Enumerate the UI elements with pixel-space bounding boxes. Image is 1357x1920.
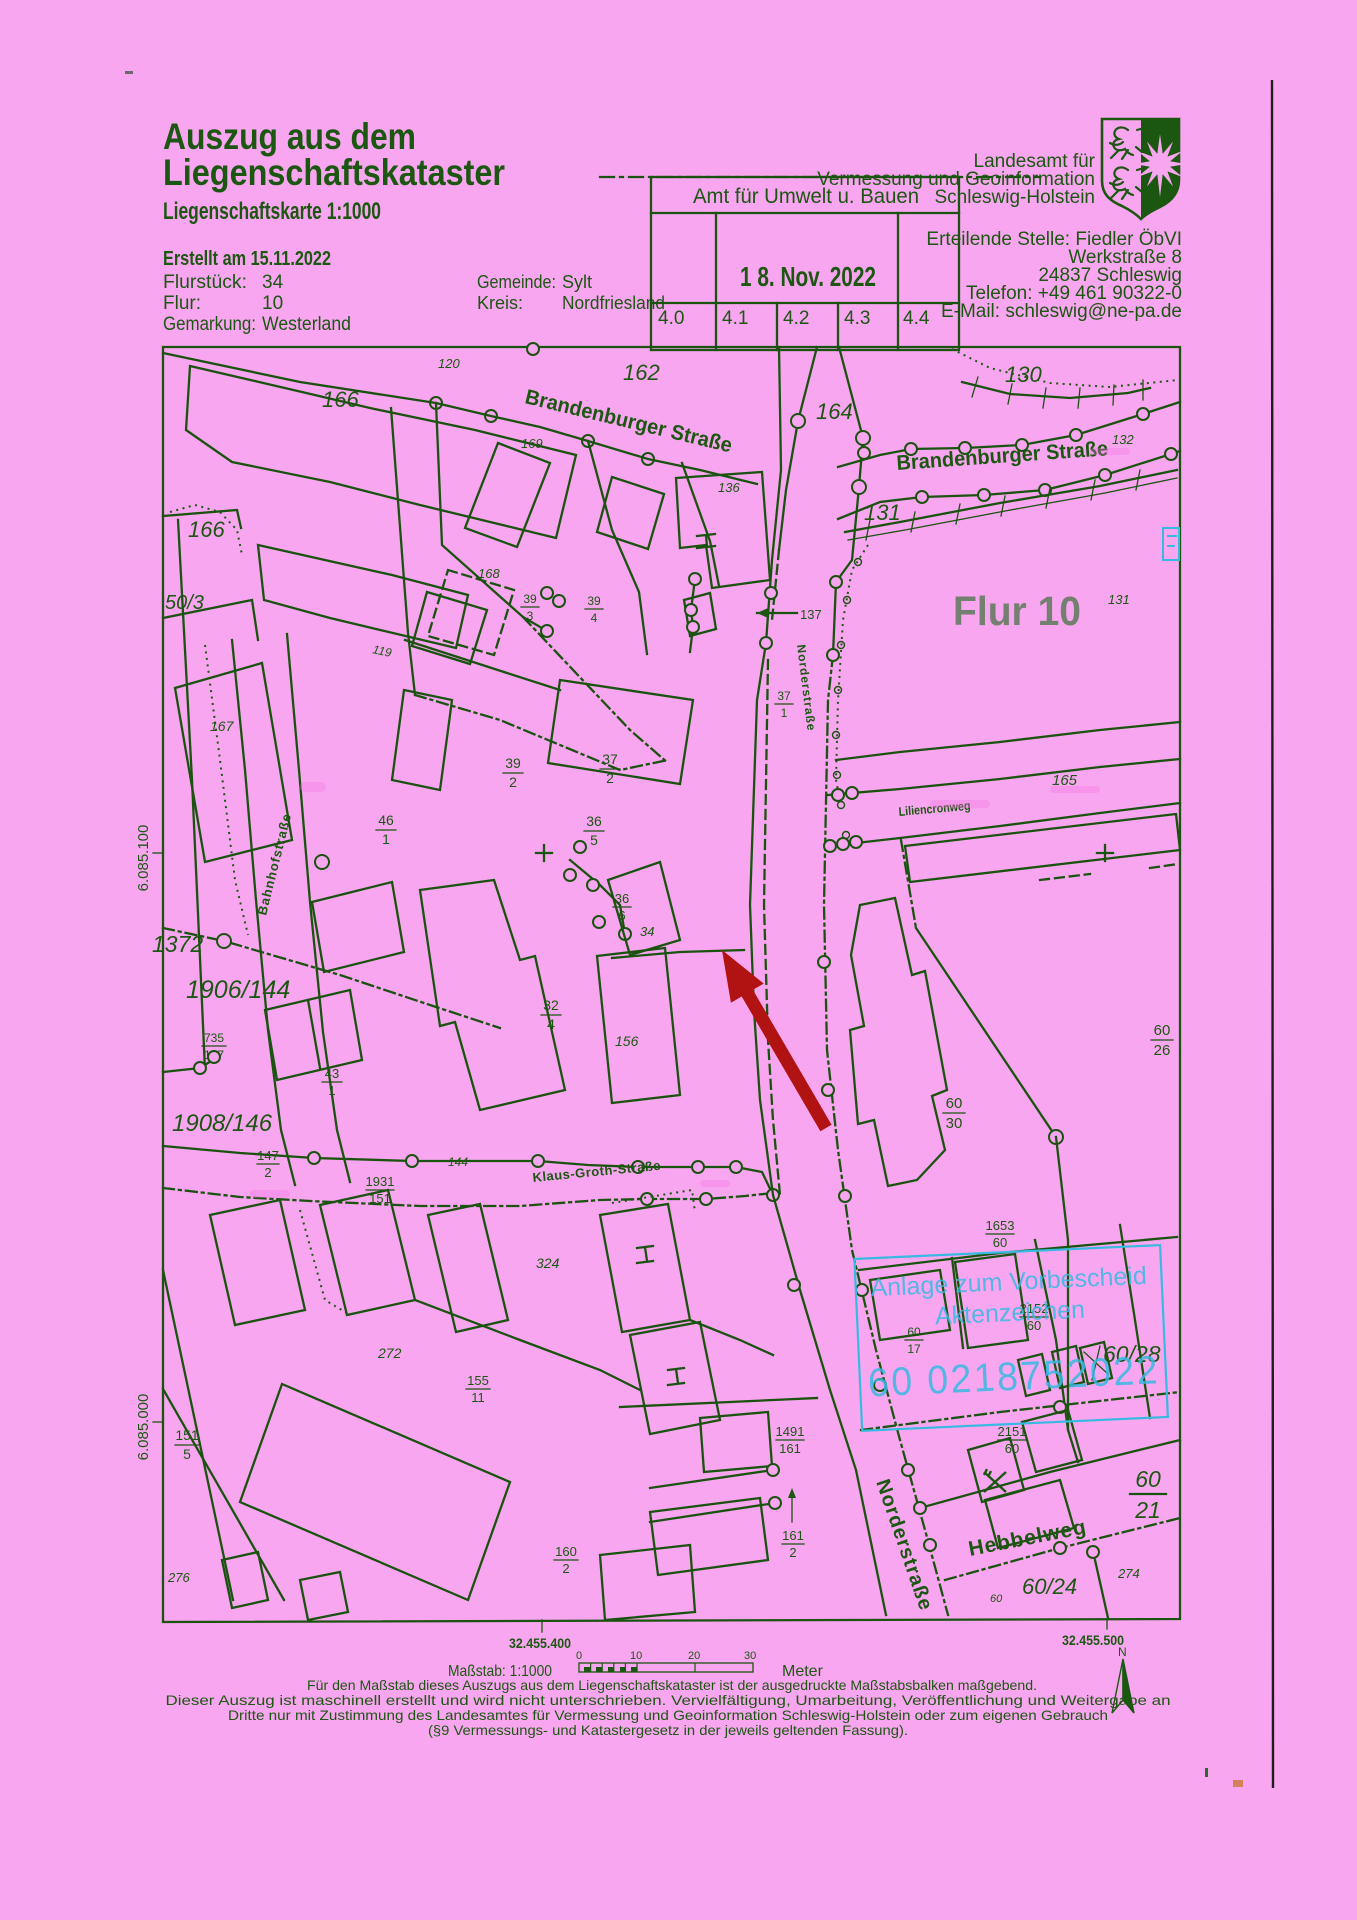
svg-text:39: 39 bbox=[587, 594, 601, 608]
svg-text:60: 60 bbox=[993, 1235, 1007, 1250]
svg-text:168: 168 bbox=[478, 566, 500, 581]
svg-text:34: 34 bbox=[262, 272, 284, 293]
svg-text:167: 167 bbox=[210, 718, 235, 734]
svg-text:1: 1 bbox=[382, 831, 390, 847]
svg-text:11: 11 bbox=[471, 1390, 485, 1405]
svg-text:Flur:: Flur: bbox=[163, 293, 201, 314]
svg-text:21: 21 bbox=[1134, 1497, 1161, 1523]
svg-text:N: N bbox=[1118, 1645, 1127, 1659]
svg-text:166: 166 bbox=[188, 517, 225, 542]
svg-text:17: 17 bbox=[907, 1342, 921, 1356]
svg-text:Auszug aus dem: Auszug aus dem bbox=[163, 116, 416, 157]
svg-text:6.085.000: 6.085.000 bbox=[135, 1394, 152, 1461]
svg-text:1906/144: 1906/144 bbox=[186, 976, 290, 1004]
svg-text:5: 5 bbox=[590, 832, 598, 848]
svg-text:39: 39 bbox=[523, 592, 537, 606]
svg-text:60: 60 bbox=[1135, 1466, 1161, 1492]
svg-text:26: 26 bbox=[1154, 1042, 1171, 1059]
svg-text:20: 20 bbox=[688, 1650, 700, 1662]
svg-text:1372: 1372 bbox=[152, 931, 203, 957]
svg-text:Dieser Auszug ist maschinell e: Dieser Auszug ist maschinell erstellt un… bbox=[166, 1692, 1171, 1708]
svg-text:324: 324 bbox=[536, 1255, 560, 1271]
svg-text:Liegenschaftskarte 1:1000: Liegenschaftskarte 1:1000 bbox=[163, 198, 381, 225]
svg-text:169: 169 bbox=[521, 436, 543, 451]
svg-text:735: 735 bbox=[204, 1031, 224, 1045]
svg-text:276: 276 bbox=[167, 1570, 190, 1585]
svg-text:Für den Maßstab dieses Auszugs: Für den Maßstab dieses Auszugs aus dem L… bbox=[307, 1677, 1037, 1693]
svg-text:37: 37 bbox=[777, 689, 791, 703]
svg-text:37: 37 bbox=[602, 751, 618, 767]
svg-text:136: 136 bbox=[718, 480, 740, 495]
svg-text:E-Mail: schleswig@ne-pa.de: E-Mail: schleswig@ne-pa.de bbox=[941, 301, 1182, 322]
svg-text:1: 1 bbox=[328, 1083, 335, 1098]
svg-text:155: 155 bbox=[467, 1373, 489, 1388]
svg-text:46: 46 bbox=[378, 812, 394, 828]
svg-text:Liegenschaftskataster: Liegenschaftskataster bbox=[163, 152, 505, 193]
svg-text:Flurstück:: Flurstück: bbox=[163, 272, 247, 293]
svg-text:Norderstraße: Norderstraße bbox=[794, 644, 819, 732]
svg-text:Aktenzeichen: Aktenzeichen bbox=[934, 1296, 1085, 1331]
svg-text:1653: 1653 bbox=[986, 1218, 1015, 1233]
svg-text:Gemeinde:: Gemeinde: bbox=[477, 272, 556, 292]
svg-text:Hebbelweg: Hebbelweg bbox=[967, 1515, 1089, 1560]
svg-text:119: 119 bbox=[371, 642, 393, 660]
svg-text:120: 120 bbox=[438, 356, 460, 371]
svg-text:(§9 Vermessungs- und Katasterg: (§9 Vermessungs- und Katastergesetz in d… bbox=[428, 1722, 908, 1738]
svg-text:160: 160 bbox=[555, 1544, 577, 1559]
svg-text:Brandenburger Straße: Brandenburger Straße bbox=[523, 385, 735, 457]
svg-text:4.3: 4.3 bbox=[844, 308, 870, 329]
svg-text:30: 30 bbox=[744, 1650, 756, 1662]
svg-text:Bahnhofstraße: Bahnhofstraße bbox=[254, 811, 294, 916]
svg-text:130: 130 bbox=[1005, 362, 1042, 387]
svg-text:4: 4 bbox=[591, 611, 598, 625]
svg-text:274: 274 bbox=[1117, 1566, 1140, 1581]
svg-text:39: 39 bbox=[505, 755, 521, 771]
svg-text:0: 0 bbox=[576, 1650, 582, 1662]
svg-text:Erstellt am 15.11.2022: Erstellt am 15.11.2022 bbox=[163, 248, 331, 270]
svg-text:Schleswig-Holstein: Schleswig-Holstein bbox=[934, 187, 1095, 208]
svg-text:156: 156 bbox=[615, 1033, 639, 1049]
svg-text:6.085.100: 6.085.100 bbox=[135, 825, 152, 892]
svg-text:60/24: 60/24 bbox=[1022, 1574, 1077, 1599]
svg-text:4: 4 bbox=[547, 1016, 555, 1032]
svg-text:32.455.400: 32.455.400 bbox=[509, 1635, 571, 1651]
svg-text:161: 161 bbox=[782, 1528, 804, 1543]
svg-text:2: 2 bbox=[789, 1545, 796, 1560]
svg-text:4.1: 4.1 bbox=[722, 308, 748, 329]
svg-text:161: 161 bbox=[779, 1441, 801, 1456]
svg-text:Nordfriesland: Nordfriesland bbox=[562, 293, 665, 313]
svg-text:60: 60 bbox=[1154, 1022, 1171, 1039]
svg-text:43: 43 bbox=[325, 1066, 339, 1081]
svg-text:Anlage zum Vorbescheid: Anlage zum Vorbescheid bbox=[870, 1262, 1148, 1303]
svg-text:1908/146: 1908/146 bbox=[172, 1110, 273, 1137]
svg-text:162: 162 bbox=[623, 360, 660, 385]
svg-text:30: 30 bbox=[946, 1115, 963, 1132]
svg-text:Dritte nur mit Zustimmung des: Dritte nur mit Zustimmung des Landesamte… bbox=[228, 1707, 1108, 1723]
svg-text:2: 2 bbox=[606, 770, 614, 786]
svg-text:32: 32 bbox=[543, 997, 559, 1013]
svg-text:36: 36 bbox=[615, 891, 629, 906]
svg-text:131: 131 bbox=[1108, 592, 1130, 607]
svg-text:2: 2 bbox=[509, 774, 517, 790]
svg-text:32.455.500: 32.455.500 bbox=[1062, 1632, 1124, 1648]
svg-text:Flur 10: Flur 10 bbox=[953, 588, 1081, 634]
svg-text:Sylt: Sylt bbox=[562, 272, 592, 292]
svg-text:132: 132 bbox=[1112, 432, 1134, 447]
svg-text:2: 2 bbox=[264, 1165, 271, 1180]
svg-text:5: 5 bbox=[183, 1446, 191, 1462]
svg-text:4.4: 4.4 bbox=[903, 308, 930, 329]
svg-text:2: 2 bbox=[562, 1561, 569, 1576]
svg-text:Westerland: Westerland bbox=[262, 314, 351, 335]
svg-text:1931: 1931 bbox=[366, 1174, 395, 1189]
svg-text:137: 137 bbox=[800, 607, 822, 622]
svg-text:4.0: 4.0 bbox=[658, 308, 684, 329]
svg-text:Brandenburger Straße: Brandenburger Straße bbox=[896, 437, 1109, 475]
svg-text:1491: 1491 bbox=[776, 1424, 805, 1439]
svg-text:166: 166 bbox=[322, 387, 359, 412]
svg-text:4.2: 4.2 bbox=[783, 308, 809, 329]
svg-text:10: 10 bbox=[630, 1650, 642, 1662]
svg-text:10: 10 bbox=[262, 293, 283, 314]
svg-text:272: 272 bbox=[377, 1345, 402, 1361]
svg-text:1 8. Nov. 2022: 1 8. Nov. 2022 bbox=[740, 261, 876, 292]
svg-text:60: 60 bbox=[990, 1593, 1003, 1605]
svg-text:34: 34 bbox=[640, 924, 654, 939]
svg-text:1: 1 bbox=[781, 706, 788, 720]
svg-text:Kreis:: Kreis: bbox=[477, 293, 523, 313]
svg-text:144: 144 bbox=[448, 1155, 468, 1169]
svg-text:151: 151 bbox=[175, 1427, 199, 1443]
svg-text:164: 164 bbox=[816, 399, 853, 424]
svg-text:36: 36 bbox=[586, 813, 602, 829]
svg-text:60 0218752022: 60 0218752022 bbox=[867, 1348, 1161, 1405]
svg-text:Gemarkung:: Gemarkung: bbox=[163, 314, 256, 335]
svg-text:60: 60 bbox=[907, 1325, 921, 1339]
svg-text:60: 60 bbox=[946, 1095, 963, 1112]
svg-text:147: 147 bbox=[257, 1148, 279, 1163]
